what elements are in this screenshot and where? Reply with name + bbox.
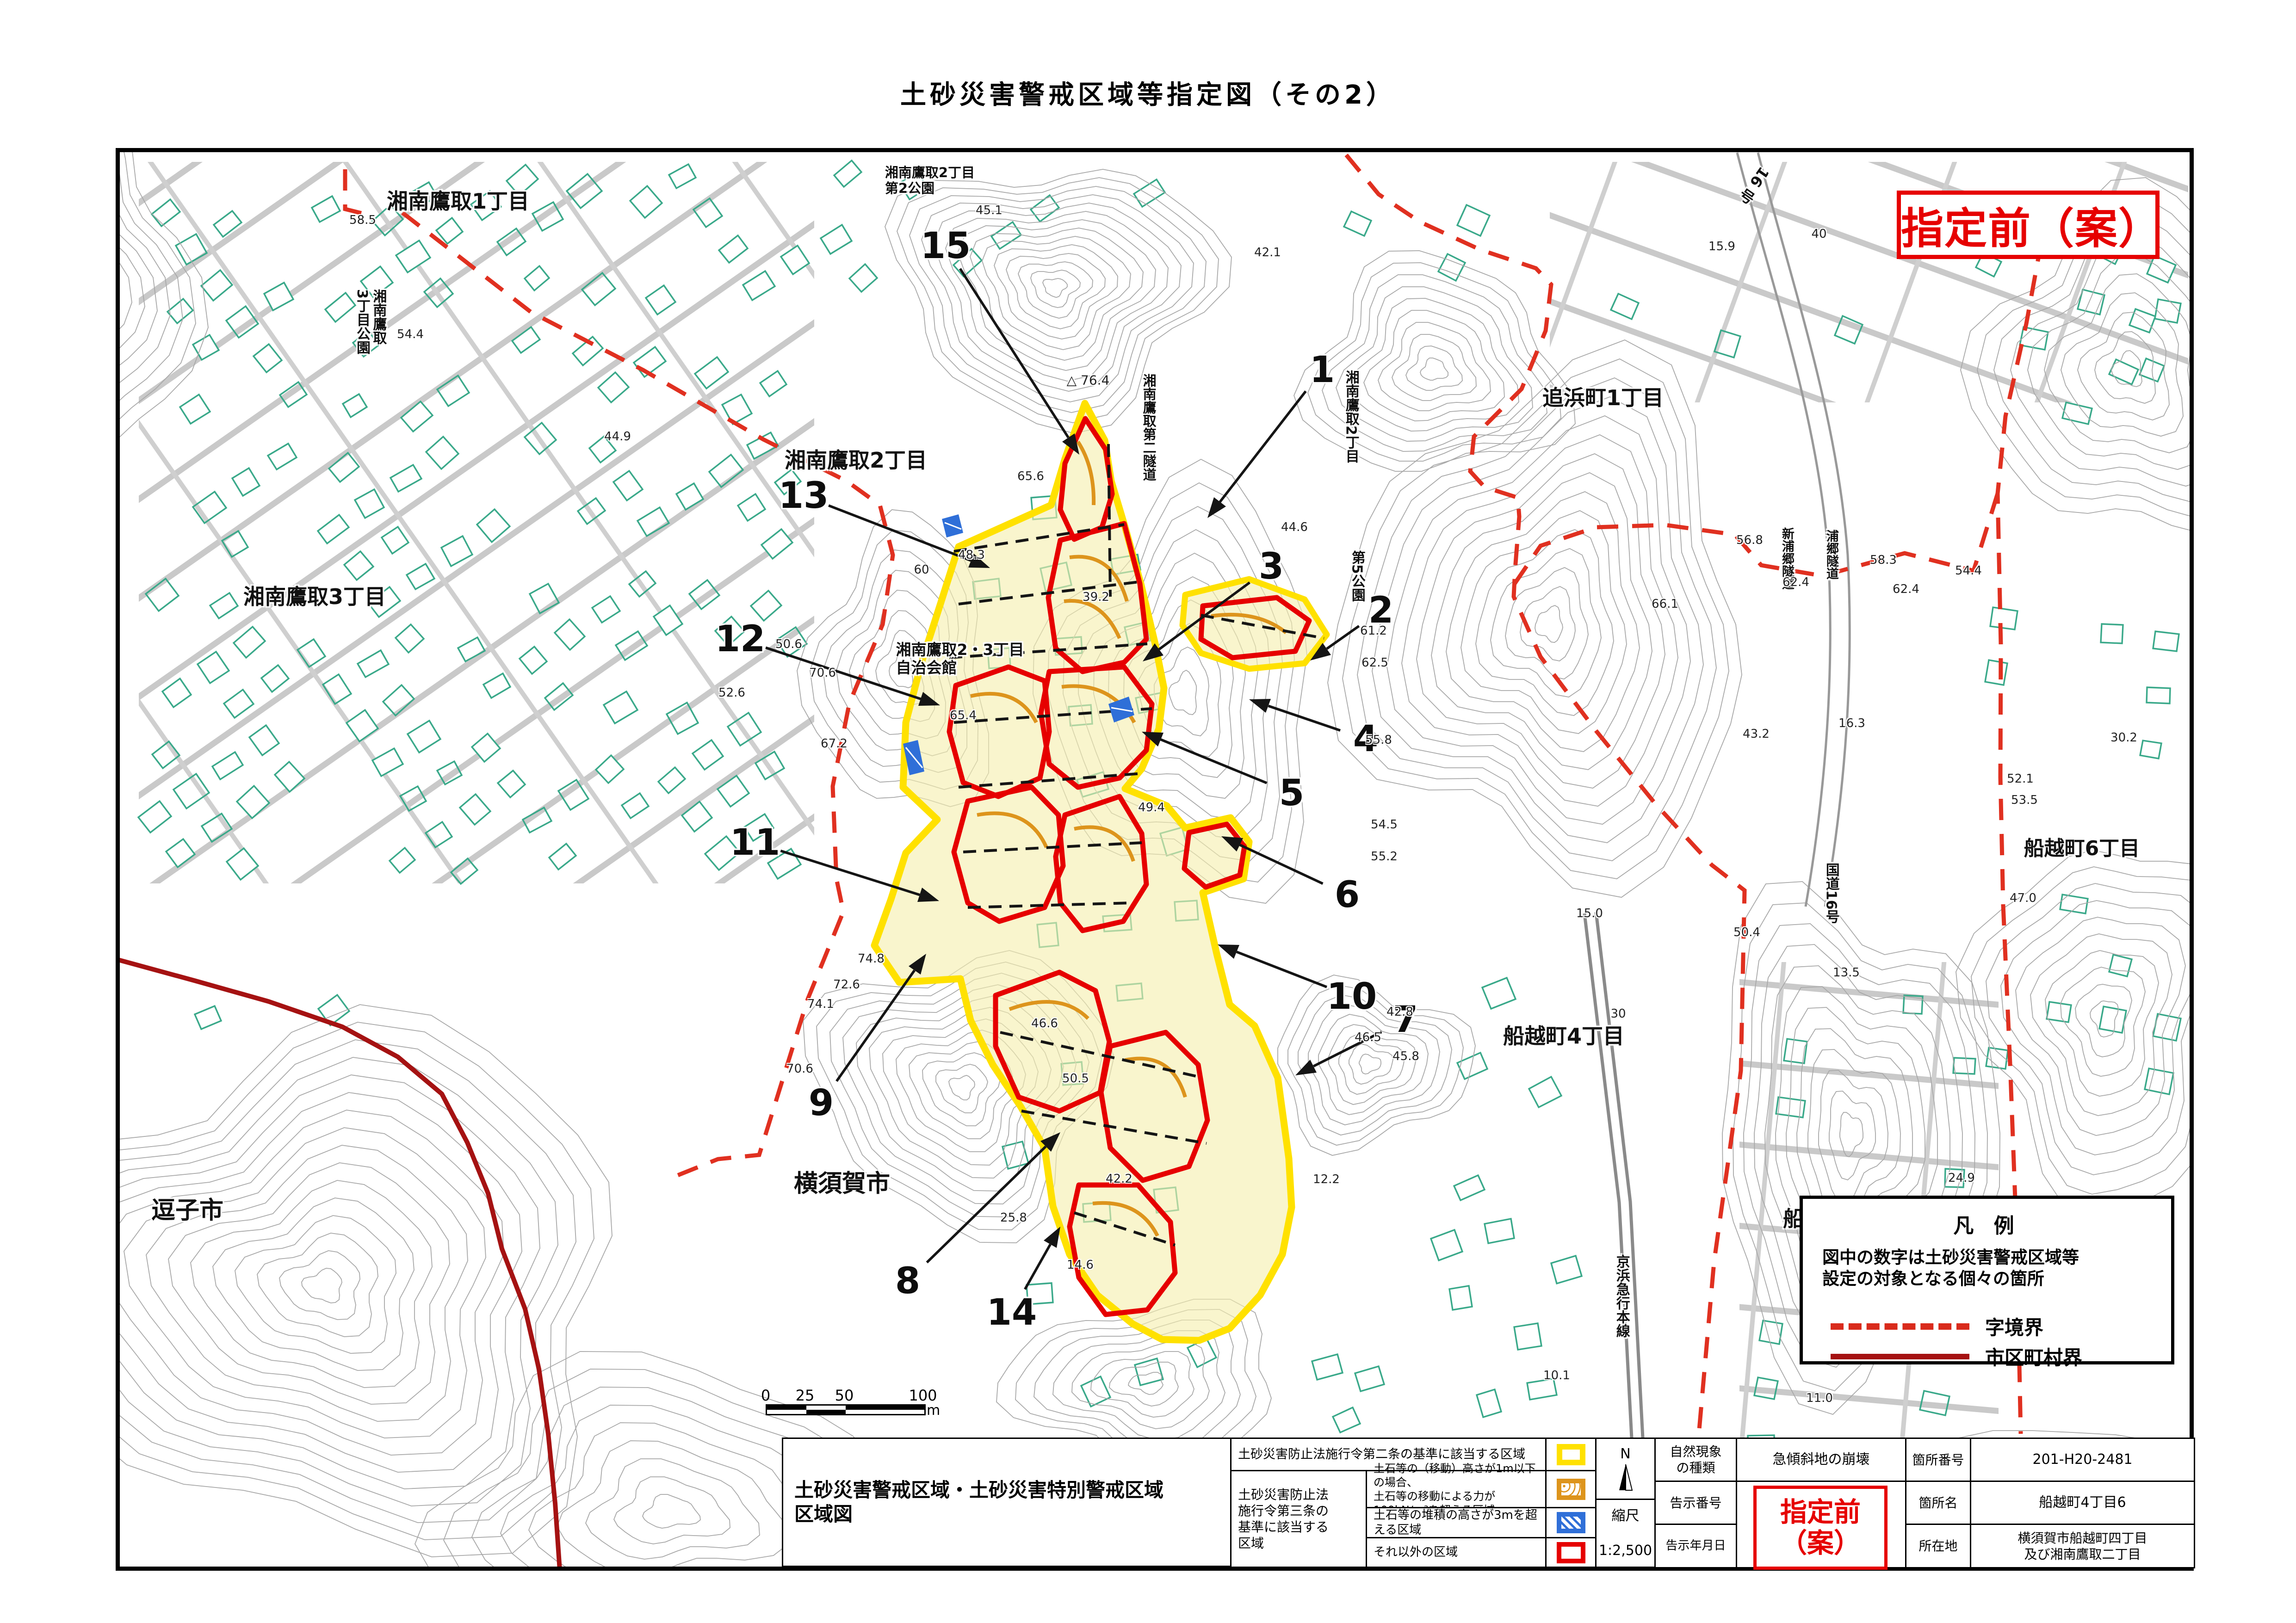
site-number: 14 [987,1292,1037,1333]
north-label: N [1620,1445,1630,1463]
spot-elevation: 58.5 [349,213,376,227]
spot-elevation: 52.1 [2007,772,2034,786]
zone-row3-swatch [1545,1507,1597,1538]
spot-elevation: 48.3 [958,548,985,562]
site-number: 5 [1279,772,1304,814]
place-label: 湘南鷹取2・3丁目 自治会館 [896,641,1024,677]
spot-elevation: 50.4 [1733,926,1760,939]
spot-elevation: 12.2 [1313,1173,1340,1186]
place-label: 国道16号 [1823,863,1839,924]
place-label: 16 号 [1734,163,1772,206]
zone-row1-swatch [1545,1438,1597,1471]
spot-elevation: 13.5 [1833,966,1860,980]
spot-elevation: 65.6 [1017,469,1044,483]
spot-elevation: 39.2 [1083,590,1109,604]
scale-unit: m [927,1402,940,1419]
tick-25: 25 [796,1387,815,1404]
site-number: 11 [730,822,780,864]
scale-value: 1:2,500 [1599,1542,1652,1560]
zone-group-label: 土砂災害防止法 施行令第三条の 基準に該当する 区域 [1230,1470,1367,1568]
place-label: 第5公園 [1349,550,1365,602]
field-label: 告示番号 [1654,1481,1737,1525]
spot-elevation: 49.4 [1138,801,1165,815]
spot-elevation: 44.9 [604,430,631,444]
zone-row3-text: 土石等の堆積の高さが3mを超える区域 [1366,1507,1547,1538]
spot-elevation: 53.5 [2011,793,2038,807]
site-number: 3 [1259,546,1284,587]
stamp-line1: 指定前 [1780,1497,1861,1528]
field-label: 箇所名 [1905,1481,1971,1525]
spot-elevation: 46.6 [1031,1017,1058,1031]
spot-elevation: 15.0 [1576,907,1603,920]
spot-elevation: 42.2 [1106,1172,1133,1186]
spot-elevation: 74.8 [858,952,885,966]
scale-cell: 縮尺 1:2,500 [1595,1499,1656,1568]
north-arrow-cell: N [1595,1438,1656,1500]
red-dashed-line-sample [1831,1323,1969,1330]
spot-elevation: 70.6 [809,666,836,680]
scale-bar-ticks: 0 25 50 100 [766,1387,960,1402]
spot-elevation: 74.1 [807,997,834,1011]
zone-row2-text: 土石等の（移動）高さが1m以下の場合、 土石等の移動による力が100kN/m²を… [1366,1470,1547,1508]
stamp-text: 指定前（案） [1901,194,2155,256]
zone-row4-text: それ以外の区域 [1366,1537,1547,1568]
site-number: 12 [715,618,766,660]
place-label: 湘南鷹取2丁目 第2公園 [885,165,975,196]
spot-elevation: 60 [914,563,929,577]
spot-elevation: 66.1 [1652,597,1678,611]
spot-elevation: 43.2 [1743,727,1770,741]
zone-row2-swatch [1545,1470,1597,1508]
spot-elevation: 52.6 [718,686,745,700]
spot-elevation: 24.9 [1948,1171,1975,1185]
red-zone-swatch [1557,1542,1585,1563]
table-doc-title: 土砂災害警戒区域・土砂災害特別警戒区域 区域図 [782,1438,1232,1567]
orange-dots-swatch [1557,1479,1585,1500]
place-label: 追浜町1丁目 [1542,385,1664,410]
spot-elevation: 46.5 [1355,1031,1381,1044]
stamp-line2: （案） [1780,1528,1861,1559]
spot-elevation: 11.0 [1806,1391,1833,1405]
place-label: 船越町6丁目 [2024,837,2140,861]
spot-elevation: 55.2 [1371,850,1398,864]
place-label: 湘南鷹取2丁目 [785,448,927,473]
place-label: 湘南鷹取3丁目 [243,584,386,609]
tick-50: 50 [835,1387,854,1404]
field-label: 自然現象 の種類 [1654,1438,1737,1482]
site-number: 6 [1335,874,1360,916]
place-label: 船越町4丁目 [1503,1024,1624,1049]
field-label: 箇所番号 [1905,1438,1971,1482]
north-arrow-icon [1616,1463,1635,1492]
site-number: 1 [1310,349,1335,391]
spot-elevation: 15.9 [1708,240,1735,253]
place-label: 湘南鷹取 3丁目公園 [354,289,387,354]
scale-bar-graphic [766,1404,926,1415]
spot-elevation: 30.2 [2110,731,2137,745]
site-number: 9 [809,1082,834,1124]
spot-elevation: 56.8 [1736,533,1763,547]
spot-elevation: 42.1 [1254,246,1281,259]
site-number: 8 [895,1260,920,1302]
field-value: 横須賀市船越町四丁目 及び湘南鷹取二丁目 [1970,1524,2195,1568]
tick-0: 0 [761,1387,770,1404]
spot-elevation: 40 [1811,227,1826,241]
spot-elevation: 25.8 [1000,1211,1027,1225]
legend-item-label: 市区町村界 [1985,1342,2082,1370]
spot-elevation: 50.6 [775,637,802,651]
spot-elevation: 16.3 [1838,716,1865,730]
spot-elevation: 50.5 [1062,1072,1089,1086]
tick-100: 100 [909,1387,937,1404]
field-label: 所在地 [1905,1524,1971,1568]
site-number: 10 [1327,976,1377,1018]
legend-title: 凡 例 [1803,1209,2171,1239]
spot-elevation: 67.2 [821,737,848,751]
spot-elevation: 54.4 [397,327,424,341]
spot-elevation: 14.6 [1067,1258,1094,1272]
legend-item-aza-boundary: 字境界 [1831,1312,2043,1340]
darkred-solid-line-sample [1831,1354,1969,1359]
legend-note: 図中の数字は土砂災害警戒区域等 設定の対象となる個々の箇所 [1822,1247,2171,1290]
summit-elevation: △ 76.4 [1067,373,1110,388]
site-number: 15 [921,225,971,267]
legend-box: 凡 例 図中の数字は土砂災害警戒区域等 設定の対象となる個々の箇所 字境界 市区… [1800,1196,2174,1364]
place-label: 湘南鷹取2丁目 [1343,370,1359,463]
field-value: 急傾斜地の崩壊 [1736,1438,1906,1482]
legend-item-municipal-boundary: 市区町村界 [1831,1342,2082,1370]
site-number: 13 [779,475,829,517]
place-label: 湘南鷹取1丁目 [387,189,529,214]
spot-elevation: 62.5 [1362,656,1388,670]
legend-item-label: 字境界 [1985,1312,2043,1340]
scale-label: 縮尺 [1599,1507,1652,1525]
place-label: 湘南鷹取第二隧道 [1141,374,1157,481]
spot-elevation: 70.6 [786,1062,813,1076]
spot-elevation: 10.1 [1543,1369,1570,1382]
hazard-map-page: 土砂災害警戒区域等指定図（その2） 湘南鷹取1丁目湘南鷹取2丁目 第2公園湘南鷹… [0,0,2296,1623]
blue-hatch-swatch [1557,1512,1585,1533]
field-value: 201-H20-2481 [1970,1438,2195,1482]
spot-elevation: 58.3 [1870,553,1897,567]
yellow-zone-swatch [1557,1444,1585,1465]
spot-elevation: 30 [1610,1007,1626,1021]
zone-row4-swatch [1545,1537,1597,1568]
place-label: 横須賀市 [794,1170,890,1198]
spot-elevation: 47.0 [2010,891,2036,905]
spot-elevation: 61.2 [1360,624,1387,638]
spot-elevation: 65.4 [950,709,977,722]
place-label: 京浜急行本線 [1613,1254,1629,1338]
spot-elevation: 55.8 [1365,733,1392,747]
spot-elevation: 45.8 [1392,1049,1419,1063]
pre-designation-stamp: 指定前（案） [1897,191,2160,259]
place-label: 浦郷隧道 [1824,530,1838,580]
spot-elevation: 72.6 [833,978,860,992]
place-label: 逗子市 [151,1197,223,1225]
spot-elevation: 42.8 [1386,1005,1413,1019]
spot-elevation: 44.6 [1281,520,1308,534]
table-stamp-pre-designation: 指定前 （案） [1753,1486,1888,1570]
spot-elevation: 62.4 [1893,582,1919,596]
field-value: 船越町4丁目6 [1970,1481,2195,1525]
field-label: 告示年月日 [1654,1524,1737,1568]
spot-elevation: 62.4 [1782,575,1809,589]
scale-bar: 0 25 50 100 m [766,1387,960,1419]
spot-elevation: 54.4 [1955,564,1982,578]
spot-elevation: 54.5 [1371,818,1398,832]
spot-elevation: 45.1 [976,204,1003,217]
